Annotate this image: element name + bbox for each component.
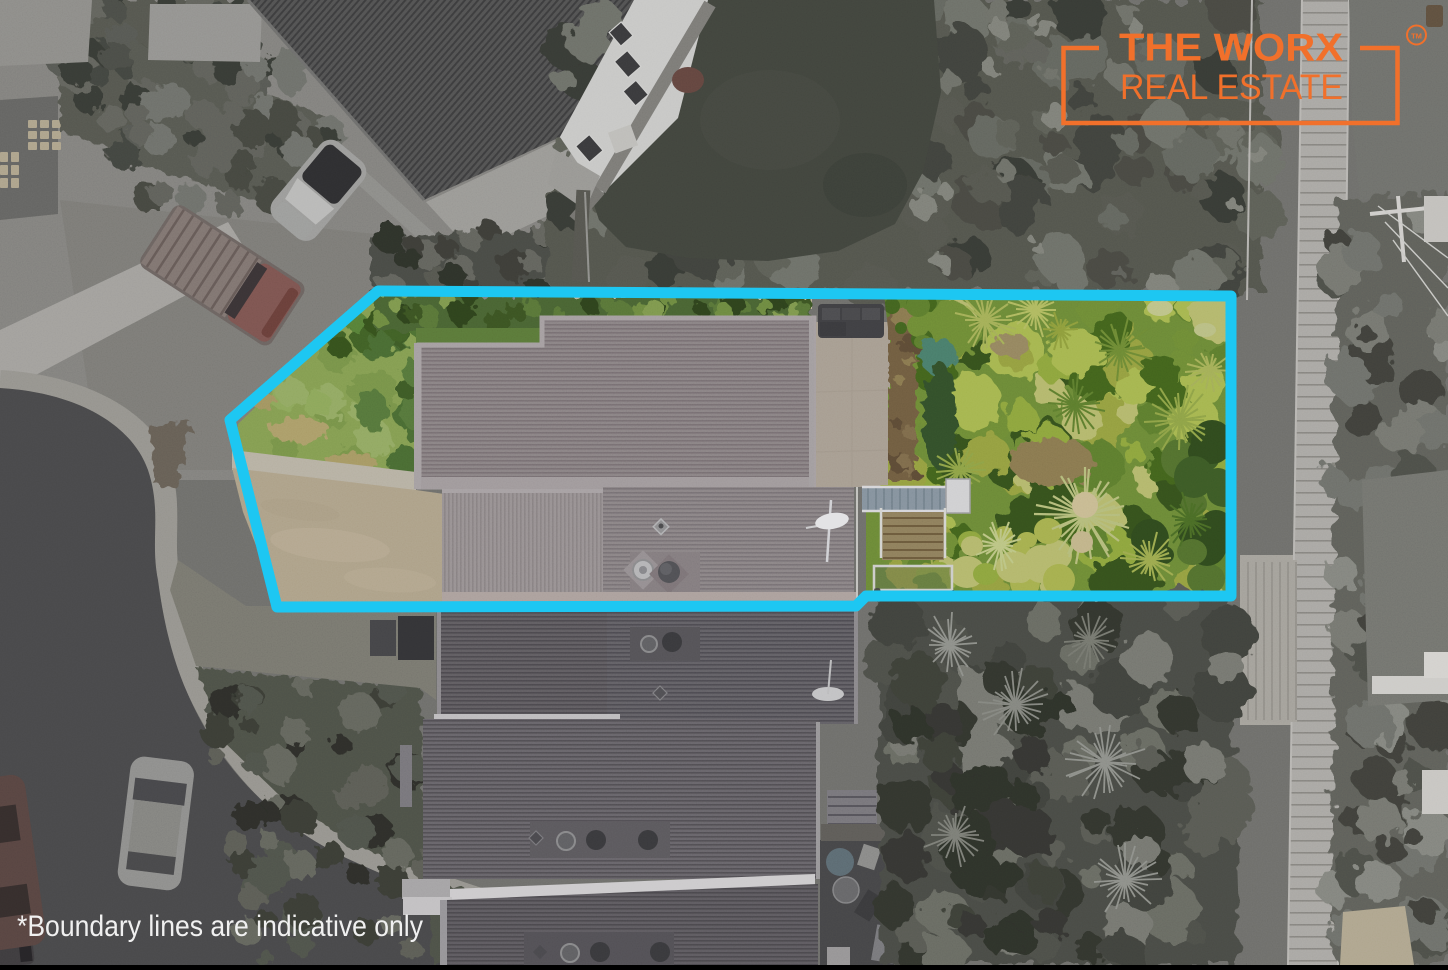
svg-text:*Boundary lines are indicative: *Boundary lines are indicative only [17,910,423,943]
svg-text:THE WORX: THE WORX [1119,27,1343,70]
svg-text:TM: TM [1411,32,1422,41]
svg-text:REAL ESTATE: REAL ESTATE [1120,68,1343,107]
